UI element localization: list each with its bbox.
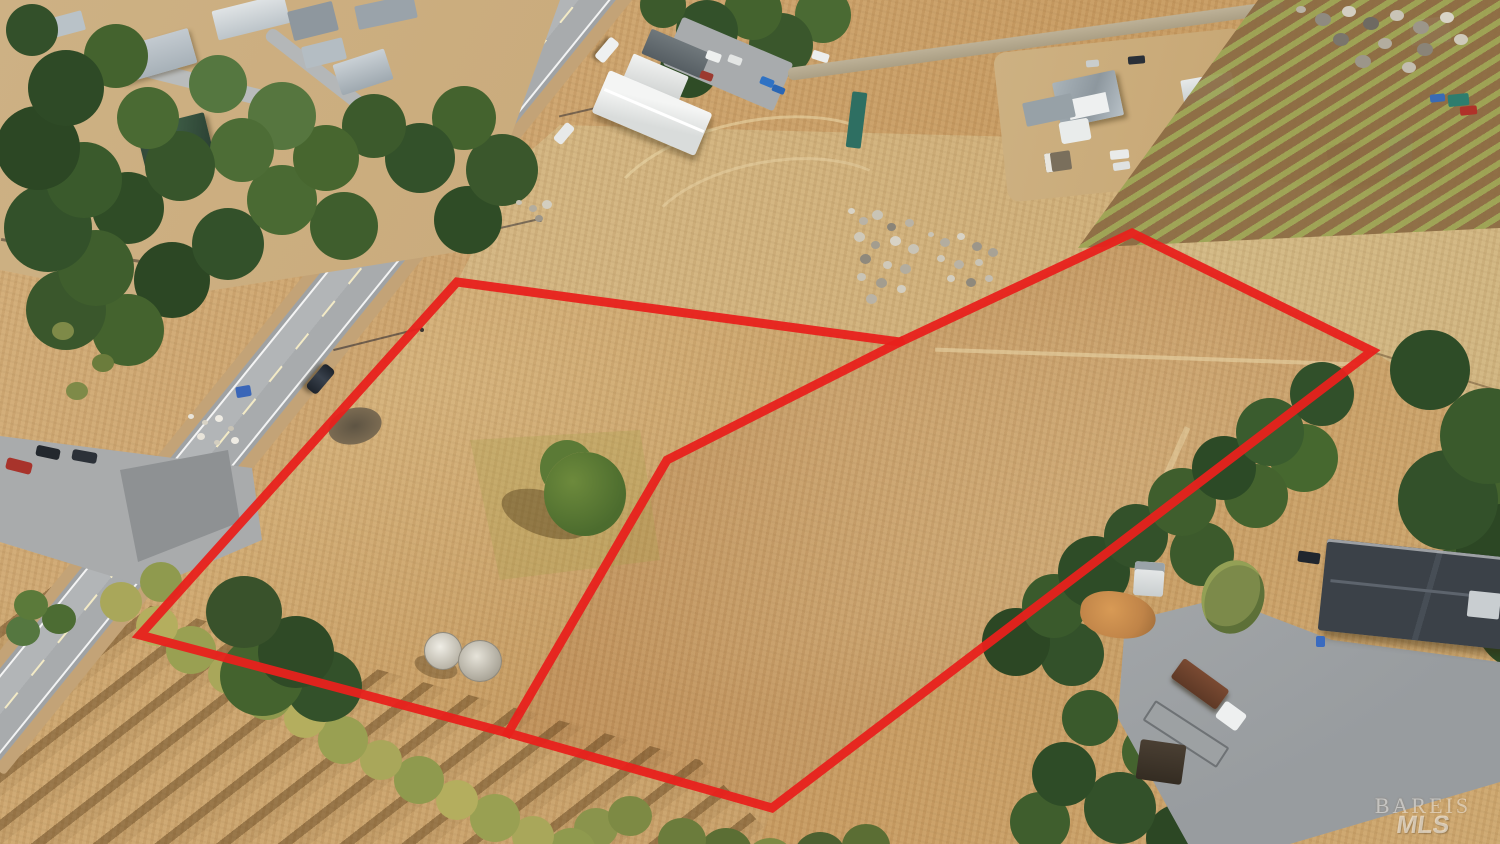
outer-parcel-boundary (140, 233, 1372, 808)
inner-parcel-divider (508, 342, 900, 733)
parcel-boundary-overlay (0, 0, 1500, 844)
aerial-photo: BAREIS MLS (0, 0, 1500, 844)
